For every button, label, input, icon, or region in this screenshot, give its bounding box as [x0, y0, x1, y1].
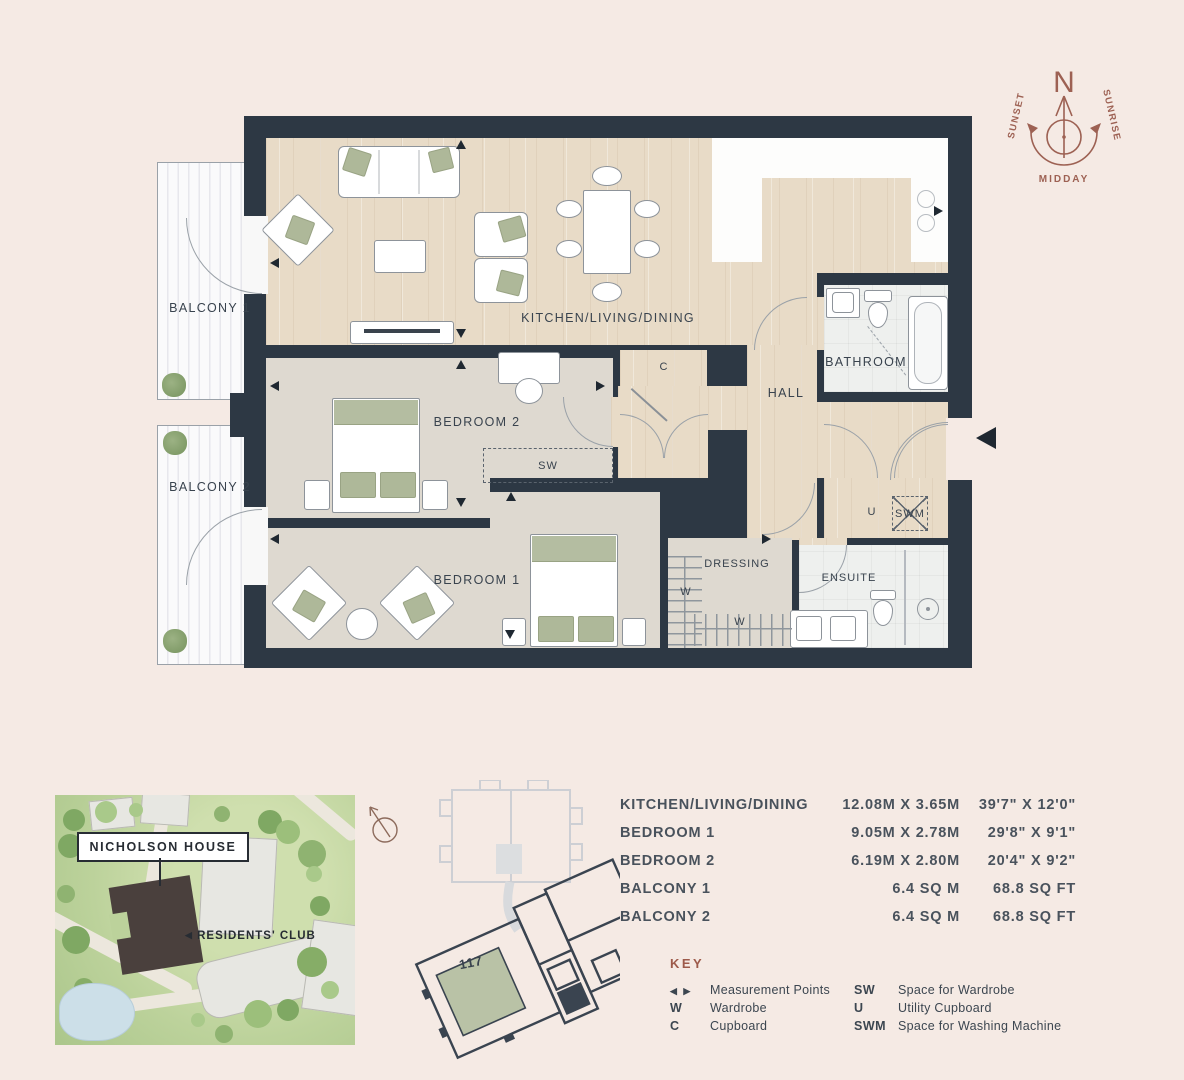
- bed2-pillow: [380, 472, 416, 498]
- bed2-side-table: [304, 480, 330, 510]
- shower-divider: [904, 550, 906, 645]
- dim-metric: 6.4 SQ M: [834, 909, 960, 925]
- legend-label-swm: Space for Washing Machine: [898, 1019, 1061, 1033]
- room-label-balcony2: BALCONY 2: [169, 480, 251, 494]
- room-label-bathroom: BATHROOM: [825, 355, 907, 369]
- kitchen-counter: [712, 138, 948, 178]
- dimension-row: BALCONY 1 6.4 SQ M 68.8 SQ FT: [620, 875, 1076, 903]
- measure-point-icon: [270, 381, 279, 391]
- living-floor: [266, 273, 817, 345]
- legend-label-w: Wardrobe: [710, 1001, 854, 1015]
- measure-point-icon: [505, 630, 515, 639]
- dining-chair: [592, 166, 622, 186]
- balcony-plant: [163, 629, 187, 653]
- marker-u: U: [868, 506, 877, 518]
- legend-symbol-u: U: [854, 1001, 898, 1015]
- balcony-plant: [162, 373, 186, 397]
- kitchen-counter: [712, 178, 762, 262]
- dim-room-name: BEDROOM 1: [620, 825, 834, 841]
- legend-label-measurement: Measurement Points: [710, 983, 854, 997]
- compass-north-label: N: [1053, 66, 1075, 99]
- sofa-seam: [378, 150, 380, 194]
- marker-c: C: [660, 361, 669, 373]
- room-label-balcony1: BALCONY 1: [169, 301, 251, 315]
- dim-metric: 6.4 SQ M: [834, 881, 960, 897]
- measure-point-icon: [762, 534, 771, 544]
- label-pointer-line: [159, 858, 161, 886]
- map-pond: [59, 983, 135, 1041]
- bathtub-inner: [914, 302, 942, 384]
- desk-chair: [515, 378, 543, 404]
- measure-point-icon: [270, 534, 279, 544]
- dimensions-table: KITCHEN/LIVING/DINING 12.08M X 3.65M 39'…: [620, 791, 1076, 931]
- measure-point-icon: [506, 492, 516, 501]
- ensuite-sink: [830, 616, 856, 641]
- shower-head-dot: [926, 607, 930, 611]
- marker-w-left: W: [680, 586, 691, 598]
- dim-room-name: BEDROOM 2: [620, 853, 834, 869]
- room-label-hall: HALL: [768, 386, 804, 400]
- kitchen-sink: [917, 190, 935, 208]
- bed1-pillow: [578, 616, 614, 642]
- bed2-throw: [334, 400, 418, 425]
- bathroom-door-opening: [817, 297, 824, 350]
- corridor-floor: [708, 386, 747, 430]
- legend-symbol-c: C: [670, 1019, 710, 1033]
- legend-symbol-measurement: ◀ ▶: [670, 986, 710, 997]
- dimension-row: BALCONY 2 6.4 SQ M 68.8 SQ FT: [620, 903, 1076, 931]
- dimension-row: BEDROOM 2 6.19M X 2.80M 20'4" X 9'2": [620, 847, 1076, 875]
- dining-chair: [634, 200, 660, 218]
- dim-room-name: KITCHEN/LIVING/DINING: [620, 797, 834, 813]
- legend-symbol-w: W: [670, 1001, 710, 1015]
- dining-chair: [556, 240, 582, 258]
- compass-midday-label: MIDDAY: [1039, 174, 1090, 185]
- club-label-text: RESIDENTS' CLUB: [197, 930, 316, 942]
- compass-sunrise-label: SUNRISE: [1100, 89, 1123, 143]
- compass-sunset-label: SUNSET: [1006, 91, 1027, 140]
- marker-w-bottom: W: [734, 616, 745, 628]
- ensuite-sink: [796, 616, 822, 641]
- legend-symbol-sw: SW: [854, 983, 898, 997]
- toilet: [864, 290, 892, 302]
- measure-point-icon: [596, 381, 605, 391]
- club-arrow-icon: ◀: [185, 930, 193, 940]
- bed1-side-table: [622, 618, 646, 646]
- legend-title: KEY: [670, 956, 1061, 971]
- marker-sw: SW: [538, 460, 558, 472]
- dim-room-name: BALCONY 2: [620, 909, 834, 925]
- dim-imperial: 68.8 SQ FT: [960, 909, 1076, 925]
- residents-club-label: ◀ RESIDENTS' CLUB: [185, 930, 316, 942]
- kitchen-sink: [917, 214, 935, 232]
- dim-metric: 12.08M X 3.65M: [834, 797, 960, 813]
- dim-imperial: 20'4" X 9'2": [960, 853, 1076, 869]
- bed1-throw: [532, 536, 616, 562]
- measure-point-icon: [456, 498, 466, 507]
- entrance-arrow-icon: [976, 427, 996, 449]
- dining-chair: [592, 282, 622, 302]
- tv: [364, 329, 440, 333]
- map-path: [278, 795, 355, 843]
- room-label-ensuite: ENSUITE: [822, 572, 877, 584]
- nicholson-house-building-notch: [109, 912, 131, 940]
- map-trees: [95, 801, 117, 823]
- bed2-pillow: [340, 472, 376, 498]
- dining-table: [583, 190, 631, 274]
- bed2-side-table: [422, 480, 448, 510]
- bathroom-sink-bowl: [832, 292, 854, 313]
- nicholson-house-label: NICHOLSON HOUSE: [77, 832, 249, 862]
- coffee-table: [374, 240, 426, 273]
- round-table: [346, 608, 378, 640]
- floorplan-page: N SUNSET SUNRISE MIDDAY: [0, 0, 1184, 1080]
- dimension-row: KITCHEN/LIVING/DINING 12.08M X 3.65M 39'…: [620, 791, 1076, 819]
- measure-point-icon: [456, 329, 466, 338]
- dim-imperial: 29'8" X 9'1": [960, 825, 1076, 841]
- bed1-pillow: [538, 616, 574, 642]
- room-label-dressing: DRESSING: [704, 558, 769, 570]
- dim-imperial: 39'7" X 12'0": [960, 797, 1076, 813]
- balcony-plant: [163, 431, 187, 455]
- site-map: NICHOLSON HOUSE ◀ RESIDENTS' CLUB: [55, 795, 355, 1045]
- dim-metric: 9.05M X 2.78M: [834, 825, 960, 841]
- dining-chair: [556, 200, 582, 218]
- legend-label-c: Cupboard: [710, 1019, 854, 1033]
- measure-point-icon: [456, 140, 466, 149]
- legend-symbol-swm: SWM: [854, 1019, 898, 1033]
- ensuite-toilet-tank: [870, 590, 896, 600]
- ensuite-door-opening: [799, 538, 847, 545]
- dimension-row: BEDROOM 1 9.05M X 2.78M 29'8" X 9'1": [620, 819, 1076, 847]
- compass-rose: N SUNSET SUNRISE MIDDAY: [1003, 58, 1125, 192]
- legend-label-sw: Space for Wardrobe: [898, 983, 1061, 997]
- dim-imperial: 68.8 SQ FT: [960, 881, 1076, 897]
- entrance-opening: [946, 418, 974, 480]
- map-trees: [63, 809, 85, 831]
- room-label-kitchen-living-dining: KITCHEN/LIVING/DINING: [521, 311, 695, 325]
- map-building: [140, 795, 190, 827]
- building-key-plan: [360, 780, 620, 1070]
- measure-point-icon: [456, 360, 466, 369]
- dining-chair: [634, 240, 660, 258]
- marker-swm: SWM: [895, 508, 925, 520]
- legend: KEY ◀ ▶ Measurement Points SW Space for …: [670, 956, 1061, 1033]
- room-label-bedroom1: BEDROOM 1: [434, 573, 521, 587]
- utility-floor: [824, 478, 948, 538]
- measure-point-icon: [270, 258, 279, 268]
- legend-label-u: Utility Cupboard: [898, 1001, 1061, 1015]
- measure-point-icon: [934, 206, 943, 216]
- dim-metric: 6.19M X 2.80M: [834, 853, 960, 869]
- sofa-seam: [418, 150, 420, 194]
- room-label-bedroom2: BEDROOM 2: [434, 415, 521, 429]
- dim-room-name: BALCONY 1: [620, 881, 834, 897]
